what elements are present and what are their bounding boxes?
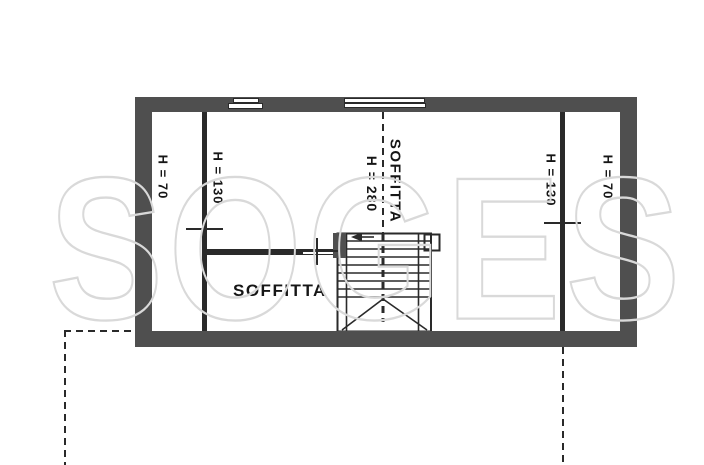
boundary-dashed-left-vert	[64, 330, 66, 465]
label-room-soffitta-main: SOFFITTA	[233, 281, 327, 301]
floorplan-page: SOGES H =	[0, 0, 704, 465]
survey-cross-icon	[561, 213, 563, 233]
center-dashed-line	[382, 112, 384, 233]
boundary-dashed-right-vert	[562, 347, 564, 465]
roof-window-icon	[228, 103, 263, 109]
label-height-left-room: H = 130	[211, 152, 226, 205]
survey-cross-icon	[316, 238, 318, 265]
label-height-left-strip: H = 70	[156, 155, 171, 200]
outer-wall-bottom	[135, 331, 637, 347]
boundary-dashed-left-horiz	[64, 330, 135, 332]
stair-anchor-wall	[333, 233, 346, 258]
survey-cross-icon	[203, 219, 205, 239]
stair-break-line	[383, 299, 427, 330]
stair-break-line	[342, 299, 383, 330]
label-room-soffitta-vertical: SOFFITTA	[387, 139, 404, 223]
label-height-center-room: H = 280	[364, 156, 380, 212]
outer-wall-left	[135, 97, 152, 347]
label-height-right-strip: H = 70	[601, 155, 616, 200]
roof-window-icon	[344, 103, 426, 108]
interior-wall-horizontal	[207, 249, 303, 255]
outer-wall-right	[620, 97, 637, 347]
staircase	[330, 228, 442, 332]
label-height-right-room: H = 130	[544, 154, 559, 207]
